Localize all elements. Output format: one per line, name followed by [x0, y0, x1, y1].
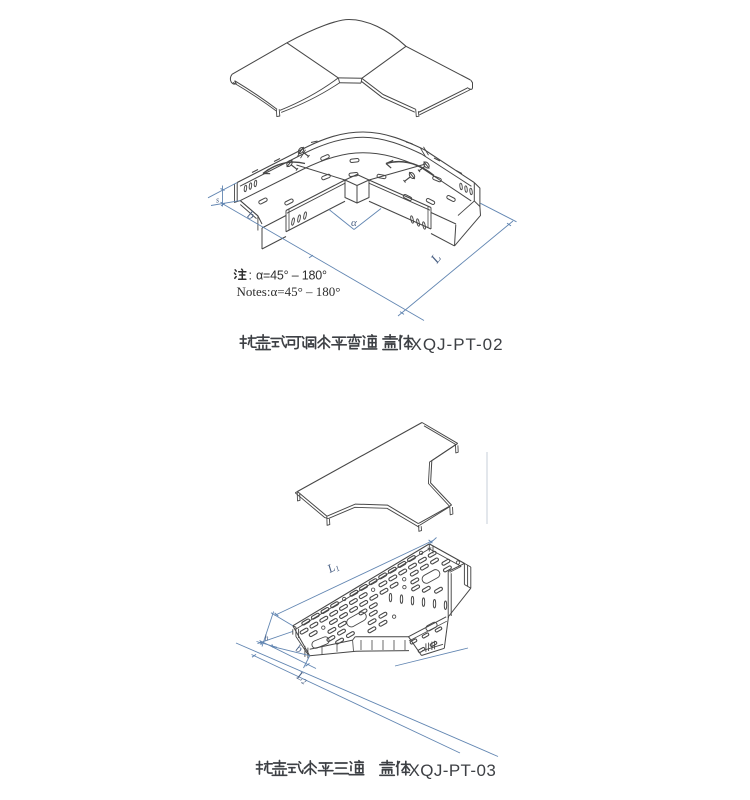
svg-text:XQJ-PT-03: XQJ-PT-03 — [409, 761, 497, 780]
svg-text:α: α — [351, 217, 357, 229]
svg-text:Notes:α=45° – 180°: Notes:α=45° – 180° — [237, 284, 341, 299]
svg-text:XQJ-PT-02: XQJ-PT-02 — [411, 335, 504, 354]
svg-text:s: s — [216, 196, 219, 205]
svg-text:L1: L1 — [324, 558, 341, 577]
svg-text::: : — [249, 269, 252, 283]
svg-text:h: h — [265, 634, 269, 643]
svg-text:α=45° – 180°: α=45° – 180° — [256, 269, 327, 283]
svg-text:L: L — [427, 251, 444, 267]
svg-text:L2: L2 — [293, 668, 310, 687]
